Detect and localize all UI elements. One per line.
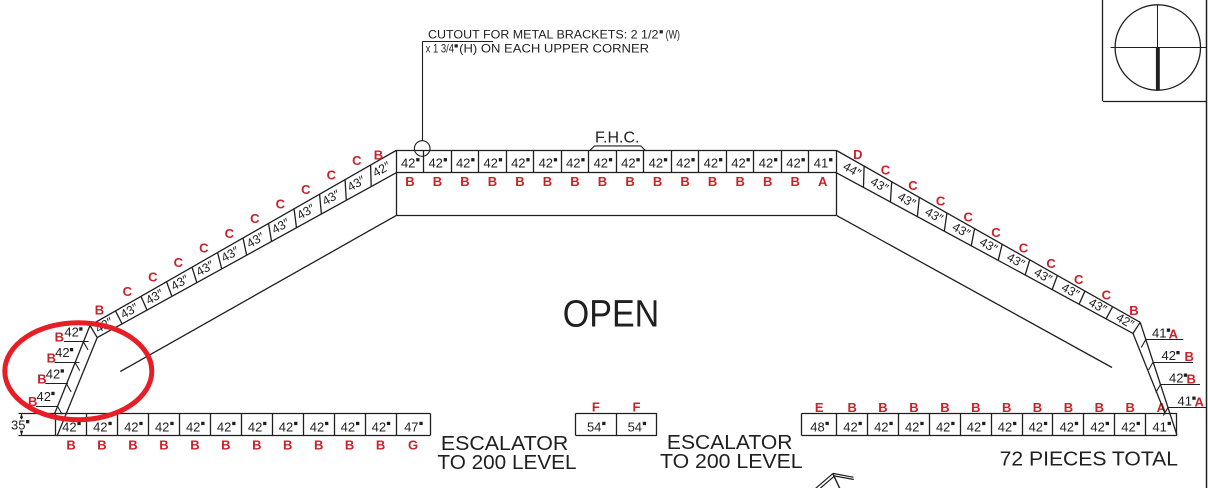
svg-text:B: B: [128, 438, 137, 453]
svg-text:42: 42: [155, 419, 169, 434]
svg-text:TO 200 LEVEL: TO 200 LEVEL: [660, 451, 803, 473]
svg-text:42: 42: [594, 156, 608, 171]
svg-text:42: 42: [649, 156, 663, 171]
svg-text:C: C: [327, 168, 337, 183]
svg-text:B: B: [345, 438, 354, 453]
svg-text:C: C: [1074, 272, 1084, 287]
svg-text:B: B: [221, 438, 230, 453]
svg-text:42: 42: [967, 419, 981, 434]
svg-text:B: B: [570, 174, 579, 189]
svg-text:B: B: [763, 174, 772, 189]
svg-text:42: 42: [704, 156, 718, 171]
svg-text:B: B: [791, 174, 800, 189]
svg-text:42: 42: [1060, 419, 1074, 434]
svg-text:G: G: [408, 438, 418, 453]
svg-text:B: B: [488, 174, 497, 189]
svg-text:B: B: [878, 400, 887, 415]
svg-text:B: B: [680, 174, 689, 189]
svg-text:54: 54: [587, 419, 601, 434]
svg-text:42: 42: [46, 366, 60, 381]
svg-text:C: C: [1019, 241, 1029, 256]
svg-text:B: B: [940, 400, 949, 415]
svg-text:B: B: [708, 174, 717, 189]
svg-text:48: 48: [810, 419, 824, 434]
svg-text:B: B: [433, 174, 442, 189]
svg-text:41: 41: [814, 156, 828, 171]
svg-text:42: 42: [539, 156, 553, 171]
svg-text:B: B: [1185, 349, 1194, 364]
svg-text:42: 42: [483, 156, 497, 171]
svg-text:C: C: [250, 211, 260, 226]
svg-text:B: B: [283, 438, 292, 453]
svg-text:C: C: [148, 270, 158, 285]
svg-text:x 1 3/4: x 1 3/4: [426, 42, 455, 55]
svg-text:B: B: [625, 174, 634, 189]
svg-text:42: 42: [566, 156, 580, 171]
svg-text:B: B: [1126, 400, 1135, 415]
svg-text:F.H.C.: F.H.C.: [595, 130, 639, 147]
svg-text:E: E: [815, 400, 824, 415]
svg-text:43″: 43″: [345, 173, 368, 194]
svg-text:42: 42: [1029, 419, 1043, 434]
svg-text:B: B: [374, 148, 383, 163]
svg-text:C: C: [881, 162, 891, 177]
svg-text:42: 42: [1162, 348, 1176, 363]
svg-text:C: C: [123, 284, 133, 299]
svg-text:B: B: [909, 400, 918, 415]
svg-text:B: B: [1129, 303, 1138, 318]
svg-text:43″: 43″: [295, 201, 318, 222]
svg-text:TO 200 LEVEL: TO 200 LEVEL: [437, 452, 576, 474]
svg-text:42: 42: [248, 419, 262, 434]
svg-text:43″: 43″: [143, 286, 166, 307]
svg-text:B: B: [376, 438, 385, 453]
svg-text:B: B: [1002, 400, 1011, 415]
svg-text:47: 47: [404, 419, 418, 434]
svg-text:42: 42: [124, 419, 138, 434]
svg-text:(H) ON EACH UPPER CORNER: (H) ON EACH UPPER CORNER: [459, 42, 649, 55]
svg-text:A: A: [1195, 394, 1205, 409]
svg-text:B: B: [1095, 400, 1104, 415]
svg-text:B: B: [252, 438, 261, 453]
svg-text:43″: 43″: [269, 215, 292, 236]
svg-text:C: C: [225, 226, 235, 241]
svg-text:42: 42: [456, 156, 470, 171]
svg-text:42: 42: [759, 156, 773, 171]
svg-text:C: C: [991, 225, 1001, 240]
svg-text:42: 42: [401, 156, 415, 171]
svg-text:B: B: [97, 438, 106, 453]
svg-text:43″: 43″: [219, 244, 242, 265]
svg-text:B: B: [314, 438, 323, 453]
svg-text:42: 42: [372, 419, 386, 434]
svg-text:42: 42: [93, 419, 107, 434]
svg-text:F: F: [633, 400, 641, 415]
svg-text:42: 42: [731, 156, 745, 171]
svg-text:B: B: [66, 438, 75, 453]
svg-text:A: A: [818, 174, 828, 189]
svg-text:(W): (W): [666, 29, 681, 42]
svg-text:42: 42: [843, 419, 857, 434]
svg-text:42: 42: [936, 419, 950, 434]
svg-text:42: 42: [186, 419, 200, 434]
svg-text:B: B: [598, 174, 607, 189]
svg-text:C: C: [174, 255, 184, 270]
svg-text:B: B: [55, 330, 64, 345]
svg-text:42: 42: [279, 419, 293, 434]
svg-text:D: D: [853, 147, 862, 162]
svg-text:42: 42: [428, 156, 442, 171]
svg-text:B: B: [190, 438, 199, 453]
svg-text:42: 42: [1090, 419, 1104, 434]
svg-text:A: A: [1169, 326, 1179, 341]
svg-text:C: C: [352, 153, 362, 168]
svg-text:42: 42: [621, 156, 635, 171]
svg-text:42: 42: [341, 419, 355, 434]
svg-text:42: 42: [786, 156, 800, 171]
svg-text:42: 42: [64, 324, 78, 339]
svg-text:CUTOUT FOR METAL BRACKETS: 2 1: CUTOUT FOR METAL BRACKETS: 2 1/2: [428, 29, 658, 42]
svg-text:43″: 43″: [244, 229, 267, 250]
svg-text:43″: 43″: [118, 300, 141, 321]
svg-text:C: C: [1102, 287, 1112, 302]
svg-text:C: C: [276, 197, 286, 212]
svg-text:B: B: [1187, 371, 1196, 386]
svg-text:54: 54: [628, 419, 642, 434]
svg-text:C: C: [964, 209, 974, 224]
svg-text:72 PIECES TOTAL: 72 PIECES TOTAL: [1000, 448, 1178, 470]
svg-text:C: C: [199, 240, 209, 255]
svg-text:B: B: [736, 174, 745, 189]
svg-text:C: C: [1046, 256, 1056, 271]
svg-text:F: F: [592, 400, 600, 415]
svg-text:42: 42: [1121, 419, 1135, 434]
svg-text:B: B: [405, 174, 414, 189]
svg-text:35: 35: [11, 418, 25, 433]
svg-text:42: 42: [310, 419, 324, 434]
svg-text:41: 41: [1152, 419, 1166, 434]
svg-text:43″: 43″: [168, 272, 191, 293]
svg-text:42: 42: [676, 156, 690, 171]
svg-text:43″: 43″: [868, 174, 891, 195]
svg-text:42: 42: [511, 156, 525, 171]
svg-text:B: B: [159, 438, 168, 453]
svg-text:43″: 43″: [194, 258, 217, 279]
svg-text:43″: 43″: [320, 187, 343, 208]
svg-text:42: 42: [874, 419, 888, 434]
svg-text:B: B: [848, 400, 857, 415]
svg-text:B: B: [460, 174, 469, 189]
svg-text:B: B: [971, 400, 980, 415]
svg-text:42: 42: [37, 389, 51, 404]
svg-text:42: 42: [217, 419, 231, 434]
svg-text:41: 41: [1152, 326, 1166, 341]
svg-text:C: C: [908, 178, 918, 193]
svg-text:B: B: [1064, 400, 1073, 415]
svg-text:B: B: [95, 303, 104, 318]
svg-text:42: 42: [998, 419, 1012, 434]
svg-text:41: 41: [1178, 394, 1192, 409]
svg-text:42: 42: [1169, 371, 1183, 386]
svg-text:B: B: [515, 174, 524, 189]
svg-text:C: C: [936, 194, 946, 209]
svg-text:B: B: [543, 174, 552, 189]
svg-text:B: B: [1033, 400, 1042, 415]
svg-text:B: B: [653, 174, 662, 189]
svg-text:OPEN: OPEN: [563, 294, 660, 336]
svg-text:42: 42: [55, 345, 69, 360]
svg-text:C: C: [301, 182, 311, 197]
svg-text:42: 42: [905, 419, 919, 434]
